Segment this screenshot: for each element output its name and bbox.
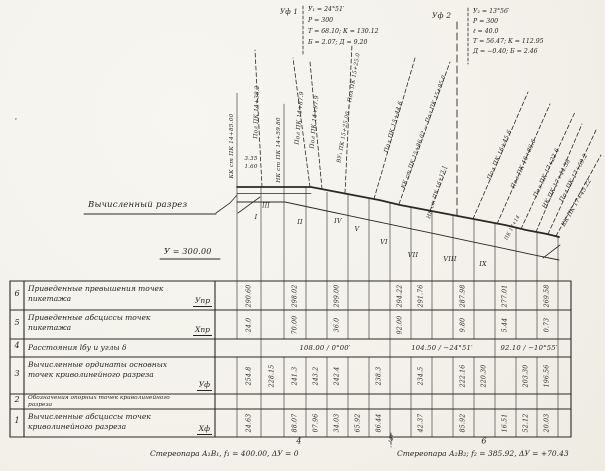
row-label-text: Приведенные абсциссы точек пикетажа [28, 313, 150, 332]
section-label-leader [216, 195, 237, 213]
table-cell-value: 291.76 [418, 285, 425, 308]
curve-start-label: НК ст ПК 14+59.80 [276, 117, 282, 183]
table-cell-value: 241.3 [292, 366, 299, 385]
table-cell-value: 277.01 [502, 285, 509, 308]
table-cell-value: 24.0 [246, 317, 253, 332]
row-label-3: Вычисленные ординаты основных точек крив… [28, 360, 178, 392]
distance-angle-value: 108.00 / 0°00′ [299, 344, 350, 352]
table-cell-value: 243.2 [313, 366, 320, 385]
point-IX: IX [479, 260, 487, 268]
row-label-text: Расстояния lбу и углы δ [28, 343, 126, 352]
row-number-2: 2 [11, 395, 23, 404]
row-label-2: Обозначения опорных точек криволинейного… [28, 395, 178, 408]
curve1-parameter-line: Т = 68.10; К = 130.12 [308, 27, 379, 38]
picket-number: 5 [388, 435, 393, 444]
curve1-parameter-line: Б = 2.07; Д = 9.20 [308, 38, 379, 49]
picket-number: 4 [296, 437, 301, 446]
row-label-4: Расстояния lбу и углы δ [28, 343, 178, 356]
curve1-parameter-line: Р = 300 [308, 16, 379, 27]
distance-angle-value: 92.10 / −10°55′ [500, 344, 557, 352]
curve2-parameter-line: Д = −0.40; Б = 2.46 [473, 47, 544, 57]
curve2-parameter-line: Т = 56.47; К = 112.95 [473, 37, 544, 47]
table-cell-value: 65.92 [355, 414, 362, 433]
table-cell-value: 34.03 [334, 414, 341, 433]
datum-elevation-label: У = 300.00 [164, 247, 212, 256]
curve1-parameters: У₁ = 24°51′Р = 300Т = 68.10; К = 130.12Б… [308, 5, 379, 48]
row-symbol: Хф [197, 424, 212, 435]
table-cell-value: 9.80 [460, 317, 467, 332]
curve1-parameter-line: У₁ = 24°51′ [308, 5, 379, 16]
picket-number: 6 [481, 437, 486, 446]
curve2-parameter-line: ℓ = 40.0 [473, 27, 544, 37]
table-cell-value: 07.96 [313, 414, 320, 433]
offset-value: 3.35 [244, 156, 257, 162]
table-cell-value: 88.07 [292, 414, 299, 433]
row-symbol: Уф [197, 380, 212, 391]
section-title: Вычисленный разрез [88, 200, 187, 210]
scan-speck: · [14, 115, 17, 125]
table-cell-value: 254.8 [246, 366, 253, 385]
point-VII: VII [408, 251, 418, 259]
point-I: I [255, 213, 258, 221]
point-IV: IV [334, 217, 342, 225]
point-II: II [297, 218, 303, 226]
table-cell-value: 228.15 [269, 364, 276, 387]
table-cell-value: 220.30 [481, 364, 488, 387]
distance-angle-value: 104.50 / −24°51′ [411, 344, 473, 352]
curve2-parameters: У₂ = 13°56′Р = 300ℓ = 40.0Т = 56.47; К =… [473, 7, 544, 57]
table-cell-value: 294.22 [397, 285, 404, 308]
row-label-text: Обозначения опорных точек криволинейного… [28, 395, 170, 408]
point-V: V [355, 225, 360, 233]
curve2-parameter-line: Р = 300 [473, 17, 544, 27]
curve2-label: Уф 2 [432, 11, 451, 20]
curve-end-label: КК ст ПК 14+85.00 [229, 113, 235, 178]
table-cell-value: 290.60 [246, 285, 253, 308]
row-number-6: 6 [11, 289, 23, 298]
table-cell-value: 85.92 [460, 414, 467, 433]
point-III: III [262, 203, 270, 210]
table-cell-value: 0.73 [544, 317, 551, 332]
row-number-4: 4 [11, 341, 23, 350]
row-label-6: Приведенные превышения точек пикетажа Уп… [28, 284, 178, 308]
curve2-parameter-line: У₂ = 13°56′ [473, 7, 544, 17]
table-cell-value: 42.37 [418, 414, 425, 433]
table-cell-value: 269.58 [544, 285, 551, 308]
table-cell-value: 196.56 [544, 364, 551, 387]
table-cell-value: 20.03 [544, 414, 551, 433]
table-cell-value: 242.4 [334, 366, 341, 385]
table-cell-value: 36.0 [334, 317, 341, 332]
row-label-text: Приведенные превышения точек пикетажа [28, 284, 163, 303]
table-cell-value: 203.30 [523, 364, 530, 387]
table-cell-value: 298.02 [292, 285, 299, 308]
table-cell-value: 86.44 [376, 414, 383, 433]
table-cell-value: 70.00 [292, 315, 299, 334]
table-cell-value: 5.44 [502, 317, 509, 332]
row-label-1: Вычисленные абсциссы точек криволинейног… [28, 412, 178, 436]
scanned-survey-diagram: Уф 1 У₁ = 24°51′Р = 300Т = 68.10; К = 13… [0, 0, 605, 471]
curve1-label: Уф 1 [280, 8, 298, 16]
row-number-5: 5 [11, 318, 23, 327]
table-cell-value: 92.00 [397, 315, 404, 334]
offset-value: 1.60 [244, 164, 257, 170]
row-label-text: Вычисленные абсциссы точек криволинейног… [28, 412, 151, 431]
table-cell-value: 16.51 [502, 414, 509, 433]
stereopair-note-left: Стереопара А₁В₁, f₁ = 400.00, ΔУ = 0 [150, 449, 298, 458]
row-symbol: Хпр [193, 325, 212, 336]
table-cell-value: 238.3 [376, 366, 383, 385]
table-cell-value: 52.12 [523, 414, 530, 433]
row-label-5: Приведенные абсциссы точек пикетажа Хпр [28, 313, 178, 337]
table-cell-value: 287.98 [460, 285, 467, 308]
table-cell-value: 24.63 [246, 414, 253, 433]
table-cell-value: 234.5 [418, 366, 425, 385]
row-number-3: 3 [11, 369, 23, 378]
point-VIII: VIII [443, 255, 456, 263]
stereopair-note-right: Стереопара А₂В₂; f₂ = 385.92, ΔУ = +70.4… [397, 449, 569, 458]
row-label-text: Вычисленные ординаты основных точек крив… [28, 360, 167, 379]
row-number-1: 1 [11, 416, 23, 425]
table-cell-value: 299.00 [334, 285, 341, 308]
point-VI: VI [380, 238, 388, 246]
table-cell-value: 222.16 [460, 364, 467, 387]
row-symbol: Упр [193, 296, 212, 307]
